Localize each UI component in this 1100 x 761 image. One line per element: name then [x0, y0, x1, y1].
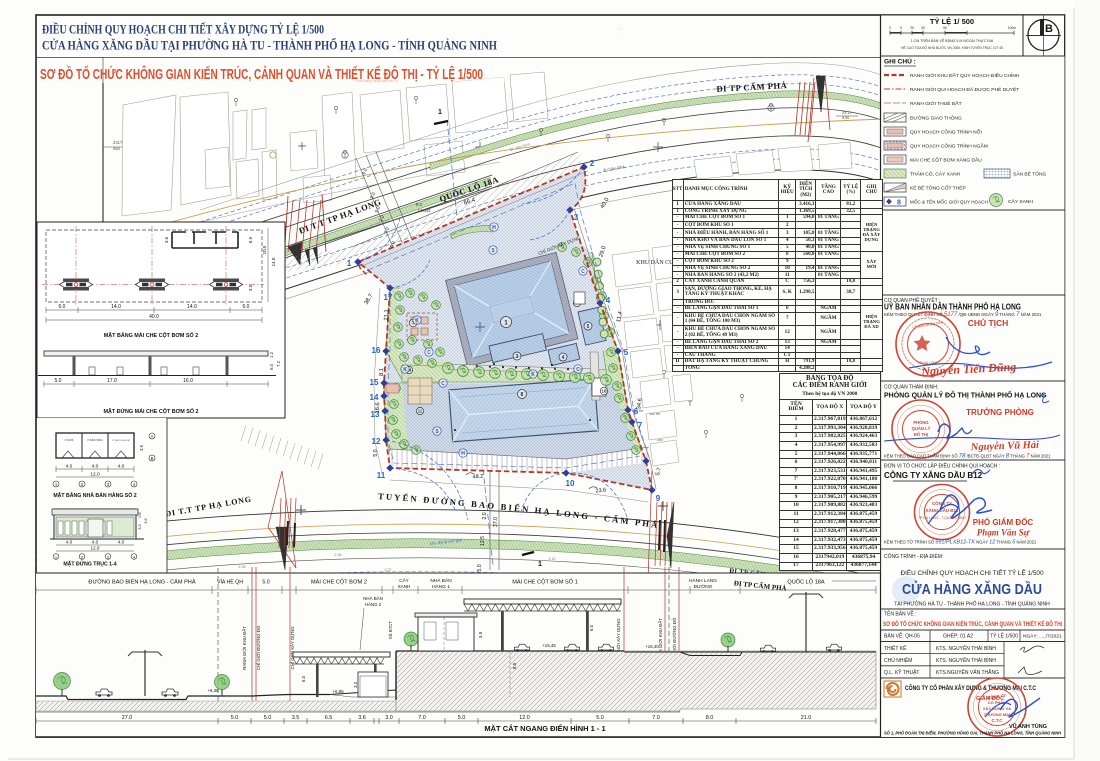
svg-text:3.3: 3.3 — [353, 681, 358, 687]
svg-text:7: 7 — [638, 421, 643, 430]
svg-text:4.0: 4.0 — [66, 464, 73, 470]
svg-text:4.0: 4.0 — [92, 540, 99, 545]
svg-text:QUẢN LÝ: QUẢN LÝ — [912, 426, 931, 431]
svg-text:K: K — [415, 318, 419, 324]
svg-text:ĐƯỜNG: ĐƯỜNG — [694, 583, 713, 590]
svg-text:1: 1 — [438, 109, 442, 116]
svg-text:20: 20 — [910, 26, 914, 30]
svg-text:HÀNG 1: HÀNG 1 — [432, 583, 450, 590]
svg-text:23.17: 23.17 — [842, 111, 852, 115]
svg-text:2.36: 2.36 — [335, 553, 342, 557]
svg-text:8: 8 — [521, 392, 524, 398]
svg-text:KHU DÂN CƯ: KHU DÂN CƯ — [636, 258, 674, 266]
svg-text:RANH GIỚI KHU ĐẤT QUY HOẠCH ĐI: RANH GIỚI KHU ĐẤT QUY HOẠCH ĐIỀU CHỈNH — [910, 72, 1020, 79]
svg-text:2: 2 — [590, 159, 595, 168]
svg-text:PHÓ GIÁM ĐỐC: PHÓ GIÁM ĐỐC — [973, 517, 1034, 527]
svg-text:Phạm Văn Sự: Phạm Văn Sự — [977, 528, 1030, 538]
svg-text:8.0: 8.0 — [706, 715, 714, 721]
svg-text:H: H — [492, 225, 496, 231]
svg-text:CHỦ TỊCH: CHỦ TỊCH — [968, 317, 1009, 328]
svg-text:SƠ ĐỒ TỔ CHỨC KHÔNG GIAN KIẾN: SƠ ĐỒ TỔ CHỨC KHÔNG GIAN KIẾN TRÚC, CẢNH… — [40, 65, 483, 83]
svg-text:CỬA HÀNG XĂNG DẦU TẠI PHƯỜNG H: CỬA HÀNG XĂNG DẦU TẠI PHƯỜNG HÀ TU - THÀ… — [42, 38, 497, 53]
svg-text:MÁI CHE CỘT BƠM 2: MÁI CHE CỘT BƠM 2 — [311, 579, 367, 586]
svg-text:4.0: 4.0 — [118, 464, 125, 470]
svg-text:4.0: 4.0 — [118, 540, 125, 545]
svg-text:THIẾT KẾ: THIẾT KẾ — [884, 645, 907, 652]
svg-text:6.9: 6.9 — [248, 236, 253, 243]
svg-text:Q.L. KỸ THUẬT: Q.L. KỸ THUẬT — [884, 669, 919, 676]
svg-text:C: C — [581, 269, 585, 275]
svg-text:3.3: 3.3 — [138, 524, 142, 529]
svg-text:16: 16 — [372, 346, 381, 355]
svg-text:QUỐC LỘ 18A: QUỐC LỘ 18A — [787, 579, 825, 586]
svg-text:6.0: 6.0 — [243, 304, 250, 310]
svg-text:TỶ LỆ 1/500: TỶ LỆ 1/500 — [990, 632, 1018, 640]
svg-text:5.0: 5.0 — [262, 580, 269, 586]
svg-text:12.0: 12.0 — [91, 546, 100, 551]
svg-text:VŨ ANH TÙNG: VŨ ANH TÙNG — [1009, 723, 1047, 730]
svg-text:ĐÔ THỊ: ĐÔ THỊ — [914, 432, 928, 437]
svg-text:1 CM TRÊN BẢN VẼ BẰNG 5 M NGOÀ: 1 CM TRÊN BẢN VẼ BẰNG 5 M NGOÀI THỰC ĐỊA — [911, 38, 994, 43]
svg-text:H: H — [461, 451, 465, 457]
svg-text:16.0: 16.0 — [183, 378, 193, 384]
svg-text:27.0: 27.0 — [122, 715, 133, 721]
svg-text:NHÀ BÁN: NHÀ BÁN — [430, 577, 452, 584]
svg-text:3.6: 3.6 — [139, 444, 144, 450]
svg-text:MẶT CẮT NGANG ĐIỂN HÌNH 1 - 1: MẶT CẮT NGANG ĐIỂN HÌNH 1 - 1 — [484, 724, 605, 733]
svg-text:5.0: 5.0 — [231, 715, 239, 721]
svg-text:3.9: 3.9 — [478, 631, 483, 638]
svg-text:50: 50 — [943, 26, 947, 30]
svg-text:3.6: 3.6 — [164, 236, 169, 243]
svg-text:4: 4 — [562, 355, 565, 361]
svg-text:ĐƯỜNG BAO BIỂN HẠ LONG - CẨM P: ĐƯỜNG BAO BIỂN HẠ LONG - CẨM PHẢ — [88, 579, 195, 586]
svg-text:BẢN VẼ: QH-05: BẢN VẼ: QH-05 — [884, 633, 920, 640]
svg-text:B: B — [1045, 23, 1053, 35]
svg-text:14: 14 — [370, 393, 379, 402]
svg-text:R-2: R-2 — [416, 202, 423, 207]
svg-text:6.0: 6.0 — [301, 675, 306, 682]
svg-text:CHỦ NHIỆM: CHỦ NHIỆM — [884, 656, 912, 664]
svg-text:QUY HOẠCH CÔNG TRÌNH NỔI: QUY HOẠCH CÔNG TRÌNH NỔI — [910, 129, 982, 136]
svg-text:7.0: 7.0 — [652, 715, 660, 721]
svg-text:QUY HOẠCH CÔNG TRÌNH NGẦM: QUY HOẠCH CÔNG TRÌNH NGẦM — [910, 143, 988, 150]
svg-text:CHỈ GIỚI ĐƯỜNG ĐỎ: CHỈ GIỚI ĐƯỜNG ĐỎ — [256, 625, 261, 670]
svg-text:CÔNG TRÌNH - ĐỊA ĐIỂM:: CÔNG TRÌNH - ĐỊA ĐIỂM: — [884, 553, 943, 560]
svg-text:CỬA HÀNG XĂNG DẦU: CỬA HÀNG XĂNG DẦU — [902, 580, 1042, 598]
svg-text:ĐƠN VỊ TỔ CHỨC LẬP ĐIỀU CHỈNH: ĐƠN VỊ TỔ CHỨC LẬP ĐIỀU CHỈNH QUI HOẠCH … — [884, 463, 1000, 470]
svg-text:MÁI CHE CỘT BƠM SỐ 1: MÁI CHE CỘT BƠM SỐ 1 — [512, 579, 578, 586]
svg-text:ĐƯỜNG GIAO THÔNG: ĐƯỜNG GIAO THÔNG — [910, 115, 962, 122]
svg-text:15: 15 — [370, 378, 379, 387]
svg-text:6.0: 6.0 — [589, 624, 594, 631]
svg-text:5.0: 5.0 — [264, 715, 272, 721]
svg-text:SỐ 1, PHỐ ĐOÀN THỊ ĐIỂM, PHƯỜN: SỐ 1, PHỐ ĐOÀN THỊ ĐIỂM, PHƯỜNG HỒNG GAI… — [884, 729, 1062, 736]
svg-text:0.6: 0.6 — [138, 512, 142, 517]
svg-text:2317: 2317 — [113, 140, 123, 145]
svg-text:11: 11 — [377, 471, 386, 480]
svg-text:23.6: 23.6 — [595, 487, 606, 494]
svg-text:CÂY: CÂY — [399, 577, 408, 583]
svg-text:5.0: 5.0 — [596, 715, 604, 721]
svg-text:8: 8 — [897, 200, 901, 207]
svg-text:12.5: 12.5 — [480, 536, 486, 546]
svg-text:CƠ QUAN THẨM ĐỊNH:: CƠ QUAN THẨM ĐỊNH: — [884, 384, 938, 391]
svg-text:5.0: 5.0 — [55, 378, 62, 384]
svg-text:MẶT ĐỨNG MÁI CHE CỘT BƠM SỐ 2: MẶT ĐỨNG MÁI CHE CỘT BƠM SỐ 2 — [103, 407, 198, 415]
svg-text:TÊN BẢN VẼ :: TÊN BẢN VẼ : — [884, 610, 917, 618]
svg-text:GHÉP: 01 A2: GHÉP: 01 A2 — [943, 633, 973, 640]
svg-text:3.0: 3.0 — [385, 715, 393, 721]
svg-text:+15,45: +15,45 — [542, 643, 556, 648]
svg-text:10: 10 — [602, 389, 607, 394]
svg-text:2.0: 2.0 — [482, 512, 488, 519]
svg-text:KÈ BTCT: KÈ BTCT — [388, 621, 393, 639]
svg-text:0: 0 — [889, 26, 891, 30]
svg-text:17: 17 — [384, 293, 393, 302]
svg-text:1: 1 — [347, 259, 352, 268]
svg-text:MỐC & TÊN MỐC GIỚI QUY HOẠCH: MỐC & TÊN MỐC GIỚI QUY HOẠCH — [910, 198, 988, 205]
svg-text:9: 9 — [656, 494, 661, 503]
svg-text:5: 5 — [587, 324, 590, 330]
svg-text:UỶ BAN NHÂN DÂN THÀNH PHỐ HẠ L: UỶ BAN NHÂN DÂN THÀNH PHỐ HẠ LONG — [884, 302, 1021, 312]
svg-text:2.36: 2.36 — [239, 565, 246, 569]
svg-text:TẠI PHƯỜNG HÀ TU - THÀNH PHỐ H: TẠI PHƯỜNG HÀ TU - THÀNH PHỐ HẠ LONG - T… — [894, 601, 1050, 608]
svg-text:21.0: 21.0 — [801, 715, 812, 721]
svg-text:6.5: 6.5 — [325, 715, 333, 721]
svg-text:XANH: XANH — [398, 584, 411, 589]
svg-text:HÀNG 2: HÀNG 2 — [365, 602, 382, 607]
svg-text:48.2: 48.2 — [472, 474, 483, 481]
svg-text:6.0: 6.0 — [59, 304, 66, 310]
svg-text:2.12: 2.12 — [549, 557, 556, 561]
svg-text:12: 12 — [372, 437, 381, 446]
svg-text:4: 4 — [606, 296, 611, 305]
svg-text:1: 1 — [538, 561, 542, 568]
svg-text:30: 30 — [921, 26, 925, 30]
svg-text:TRƯỞNG PHÒNG: TRƯỞNG PHÒNG — [966, 408, 1034, 417]
svg-text:8.1: 8.1 — [379, 368, 385, 376]
svg-text:B: B — [151, 456, 154, 461]
svg-text:+6,95: +6,95 — [332, 689, 344, 694]
svg-text:HỆ CAO TỌA ĐỘ NHÀ NƯỚC VN 2000: HỆ CAO TỌA ĐỘ NHÀ NƯỚC VN 2000, KINH TUY… — [901, 45, 1003, 50]
svg-text:1.2: 1.2 — [269, 351, 274, 357]
svg-text:14.0: 14.0 — [187, 304, 197, 310]
svg-text:KTS.NGUYỄN VĂN THẮNG: KTS.NGUYỄN VĂN THẮNG — [936, 668, 999, 676]
svg-text:14.0: 14.0 — [111, 304, 121, 310]
svg-text:4.0: 4.0 — [66, 540, 73, 545]
svg-text:KTS. NGUYỄN THÁI BÌNH: KTS. NGUYỄN THÁI BÌNH — [936, 657, 996, 664]
svg-text:XÂY DỰNG VÀ: XÂY DỰNG VÀ — [983, 706, 1011, 711]
svg-text:6.0: 6.0 — [269, 363, 274, 369]
svg-text:12.0: 12.0 — [90, 472, 100, 478]
svg-text:C: C — [427, 350, 431, 356]
svg-text:C: C — [441, 381, 445, 387]
svg-text:MÁI CHE CỘT BƠM XĂNG DẦU: MÁI CHE CỘT BƠM XĂNG DẦU — [910, 157, 982, 164]
svg-text:NGÀY: ...../7/2021: NGÀY: ...../7/2021 — [1023, 633, 1062, 640]
svg-text:3.5: 3.5 — [248, 284, 253, 291]
svg-text:10: 10 — [566, 479, 575, 488]
svg-text:12.0: 12.0 — [519, 715, 530, 721]
svg-text:40.0: 40.0 — [149, 314, 159, 320]
svg-text:+6,38: +6,38 — [207, 688, 219, 693]
svg-text:3.5: 3.5 — [292, 715, 300, 721]
svg-text:MẶT BẰNG MÁI CHE CỘT BƠM SỐ 2: MẶT BẰNG MÁI CHE CỘT BƠM SỐ 2 — [104, 331, 198, 339]
svg-text:P. NGHỈ: P. NGHỈ — [65, 439, 74, 442]
svg-text:7.0: 7.0 — [418, 715, 426, 721]
svg-text:+15,40: +15,40 — [645, 644, 659, 649]
svg-text:A: A — [151, 434, 154, 439]
svg-text:bụi tre: bụi tre — [633, 409, 644, 413]
svg-text:CÔNG TY XĂNG DẦU B12: CÔNG TY XĂNG DẦU B12 — [884, 470, 983, 480]
svg-text:TP HẠ LONG - T.QUẢNG NINH: TP HẠ LONG - T.QUẢNG NINH — [918, 515, 966, 520]
svg-text:3.6: 3.6 — [358, 715, 366, 721]
svg-text:11: 11 — [418, 409, 423, 414]
svg-text:3.9: 3.9 — [144, 518, 148, 523]
svg-text:TỶ LỆ 1/ 500: TỶ LỆ 1/ 500 — [930, 17, 974, 26]
svg-text:THẢM CỎ, CÂY XANH: THẢM CỎ, CÂY XANH — [910, 171, 961, 178]
svg-text:PHÒNG: PHÒNG — [913, 420, 928, 425]
svg-text:9.50: 9.50 — [842, 116, 849, 120]
svg-text:4.0: 4.0 — [92, 464, 99, 470]
svg-text:7.2: 7.2 — [276, 360, 281, 366]
svg-text:5.0: 5.0 — [477, 564, 483, 571]
svg-text:1: 1 — [504, 319, 508, 326]
svg-text:ĐIỀU CHỈNH QUY HOẠCH CHI TIẾT: ĐIỀU CHỈNH QUY HOẠCH CHI TIẾT XÂY DỰNG T… — [42, 22, 324, 37]
svg-text:K: K — [403, 367, 407, 373]
svg-text:HÀNH LANG: HÀNH LANG — [689, 577, 717, 584]
svg-text:NHÀ BÁN: NHÀ BÁN — [363, 596, 383, 601]
svg-text:CHỈ GIỚI XÂY DỰNG: CHỈ GIỚI XÂY DỰNG — [290, 626, 295, 670]
svg-text:8.5: 8.5 — [512, 662, 517, 669]
svg-text:16.6: 16.6 — [375, 402, 381, 413]
svg-text:MẶT ĐỨNG TRỤC 1-4: MẶT ĐỨNG TRỤC 1-4 — [63, 561, 116, 568]
svg-text:C: C — [576, 367, 580, 373]
svg-text:2.37: 2.37 — [385, 568, 392, 572]
svg-text:5.0: 5.0 — [458, 715, 466, 721]
svg-text:10.5: 10.5 — [262, 245, 267, 254]
svg-text:rào: rào — [657, 438, 663, 442]
svg-text:K: K — [531, 372, 535, 378]
svg-text:14.843: 14.843 — [418, 208, 431, 213]
svg-text:MẶT BẰNG NHÀ BÁN HÀNG SỐ 2: MẶT BẰNG NHÀ BÁN HÀNG SỐ 2 — [53, 491, 136, 499]
svg-text:VỈA HÈ QH: VỈA HÈ QH — [217, 579, 243, 586]
svg-text:RANH GIỚI KHU ĐẤT: RANH GIỚI KHU ĐẤT — [242, 626, 247, 670]
svg-text:3: 3 — [516, 354, 519, 360]
svg-text:GHI CHÚ :: GHI CHÚ : — [884, 57, 916, 66]
svg-text:P. BÁN HÀNG: P. BÁN HÀNG — [87, 439, 102, 442]
svg-text:14.0: 14.0 — [271, 257, 276, 266]
svg-text:37.0: 37.0 — [493, 517, 499, 527]
svg-text:5: 5 — [624, 348, 629, 357]
svg-text:3: 3 — [574, 213, 579, 222]
svg-text:17.0: 17.0 — [107, 378, 117, 384]
svg-text:CÂY XANH: CÂY XANH — [1008, 198, 1033, 205]
svg-text:100m: 100m — [1008, 26, 1017, 30]
svg-text:bụi tre: bụi tre — [650, 412, 661, 416]
svg-text:5: 5 — [900, 26, 902, 30]
svg-text:21.1: 21.1 — [384, 309, 390, 320]
svg-text:P. TRỰC B.LẺ GP: P. TRỰC B.LẺ GP — [112, 439, 130, 442]
svg-text:C.T.C: C.T.C — [992, 718, 1004, 723]
svg-text:KTS. NGUYỄN THÁI BÌNH: KTS. NGUYỄN THÁI BÌNH — [936, 645, 996, 652]
